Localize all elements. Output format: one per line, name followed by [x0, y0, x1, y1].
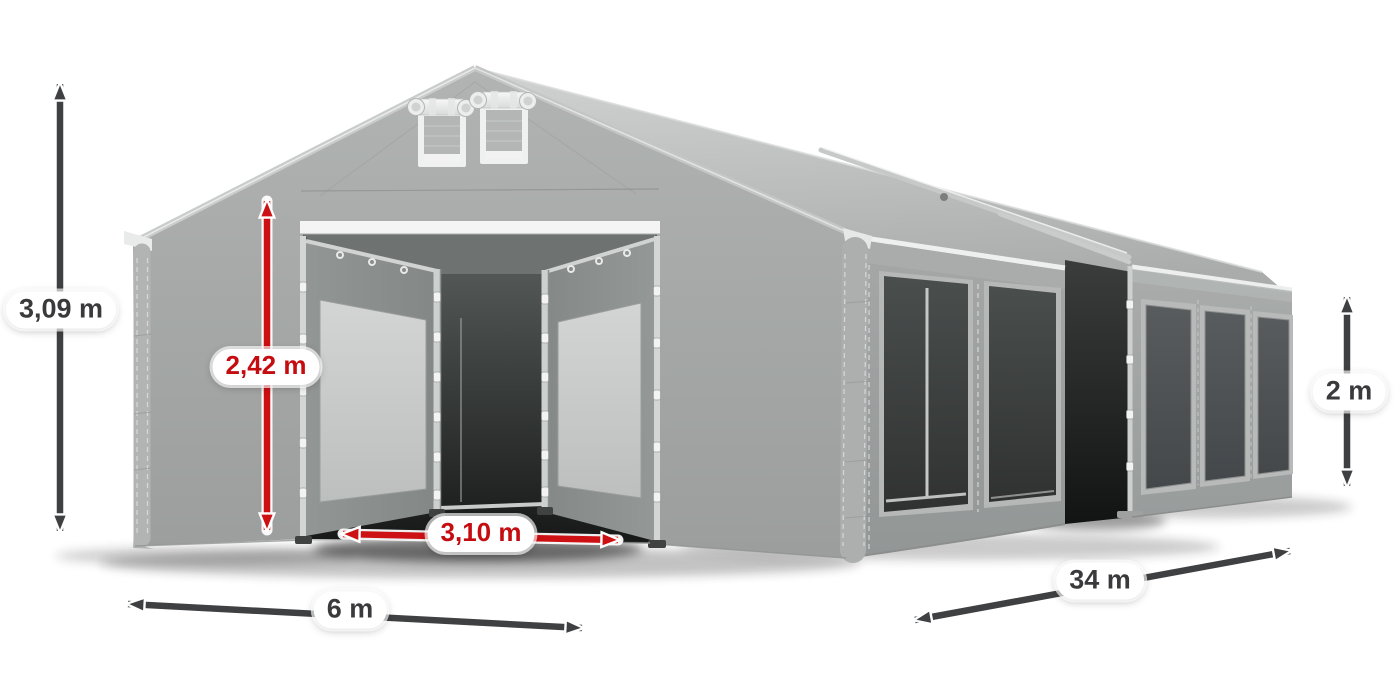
- tent: [124, 68, 1293, 558]
- entrance: [295, 221, 666, 548]
- tent-illustration: [0, 0, 1400, 700]
- door-leaf-left: [306, 241, 445, 536]
- entrance-lintel: [300, 221, 660, 234]
- rear-window-2: [1200, 305, 1250, 487]
- side-wall: [846, 237, 1065, 558]
- vent-sill: [486, 151, 522, 159]
- vent-sill: [424, 154, 460, 162]
- total-height-label: 3,09 m: [6, 291, 116, 328]
- door-leaf-right: [537, 239, 655, 541]
- side-opening-1: [879, 271, 973, 517]
- rear-window-3: [1253, 311, 1293, 479]
- vent-mesh: [424, 116, 460, 154]
- rear-window-1: [1141, 299, 1196, 495]
- door-width-label: 3,10 m: [428, 516, 535, 552]
- rear-section: [1117, 266, 1293, 518]
- front-width-label: 6 m: [314, 591, 387, 628]
- rear-post-base: [1117, 511, 1143, 518]
- door-window: [558, 303, 641, 498]
- tent-dimension-diagram: 3,09 m 2,42 m 3,10 m 6 m 34 m 2 m: [0, 0, 1400, 700]
- door-window: [320, 300, 426, 502]
- side-opening-2: [984, 281, 1061, 508]
- ridge-fitting: [940, 193, 948, 201]
- door-height-label: 2,42 m: [213, 349, 320, 385]
- corner-column-right: [843, 250, 870, 550]
- side-height-label: 2 m: [1313, 373, 1386, 410]
- length-label: 34 m: [1056, 562, 1144, 599]
- side-passage-opening: [1065, 260, 1132, 524]
